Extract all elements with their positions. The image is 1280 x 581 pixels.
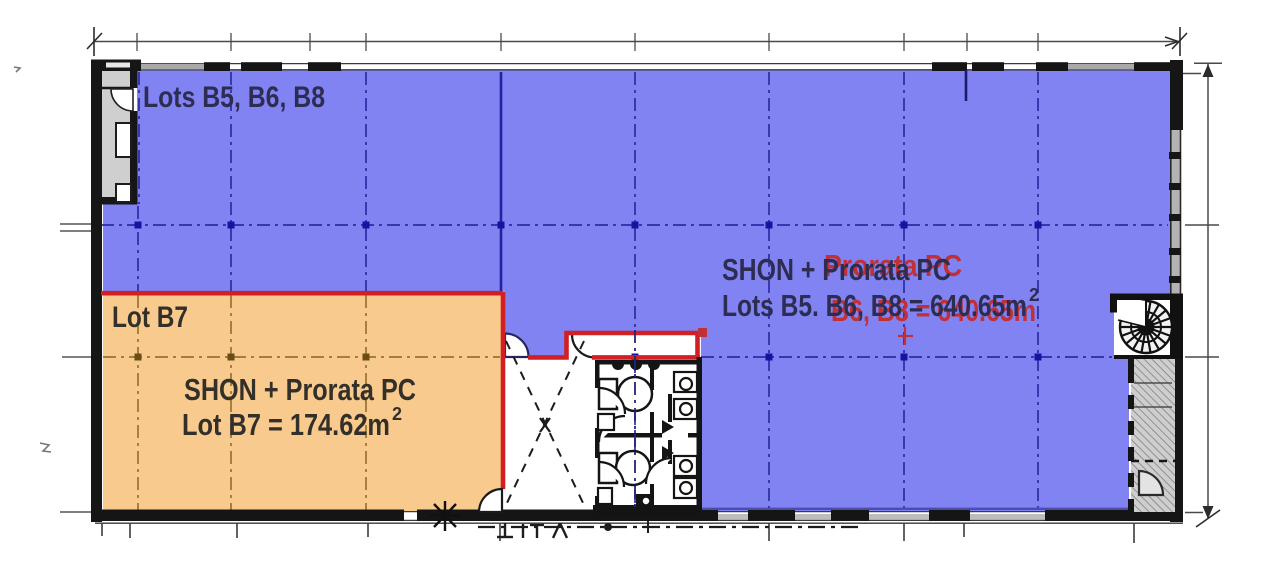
svg-text:SHON + Prorata PC: SHON + Prorata PC (722, 252, 951, 287)
svg-text:2: 2 (1029, 285, 1039, 305)
svg-text:Lots B5, B6, B8: Lots B5, B6, B8 (143, 81, 325, 114)
svg-text:Lot B7: Lot B7 (112, 301, 188, 334)
svg-text:Lots B5. B6, B8 = 640.65m: Lots B5. B6, B8 = 640.65m (722, 288, 1027, 323)
svg-text:Lot B7 = 174.62m: Lot B7 = 174.62m (182, 407, 390, 442)
svg-text:SHON + Prorata PC: SHON + Prorata PC (184, 372, 416, 407)
svg-text:2: 2 (392, 404, 402, 424)
